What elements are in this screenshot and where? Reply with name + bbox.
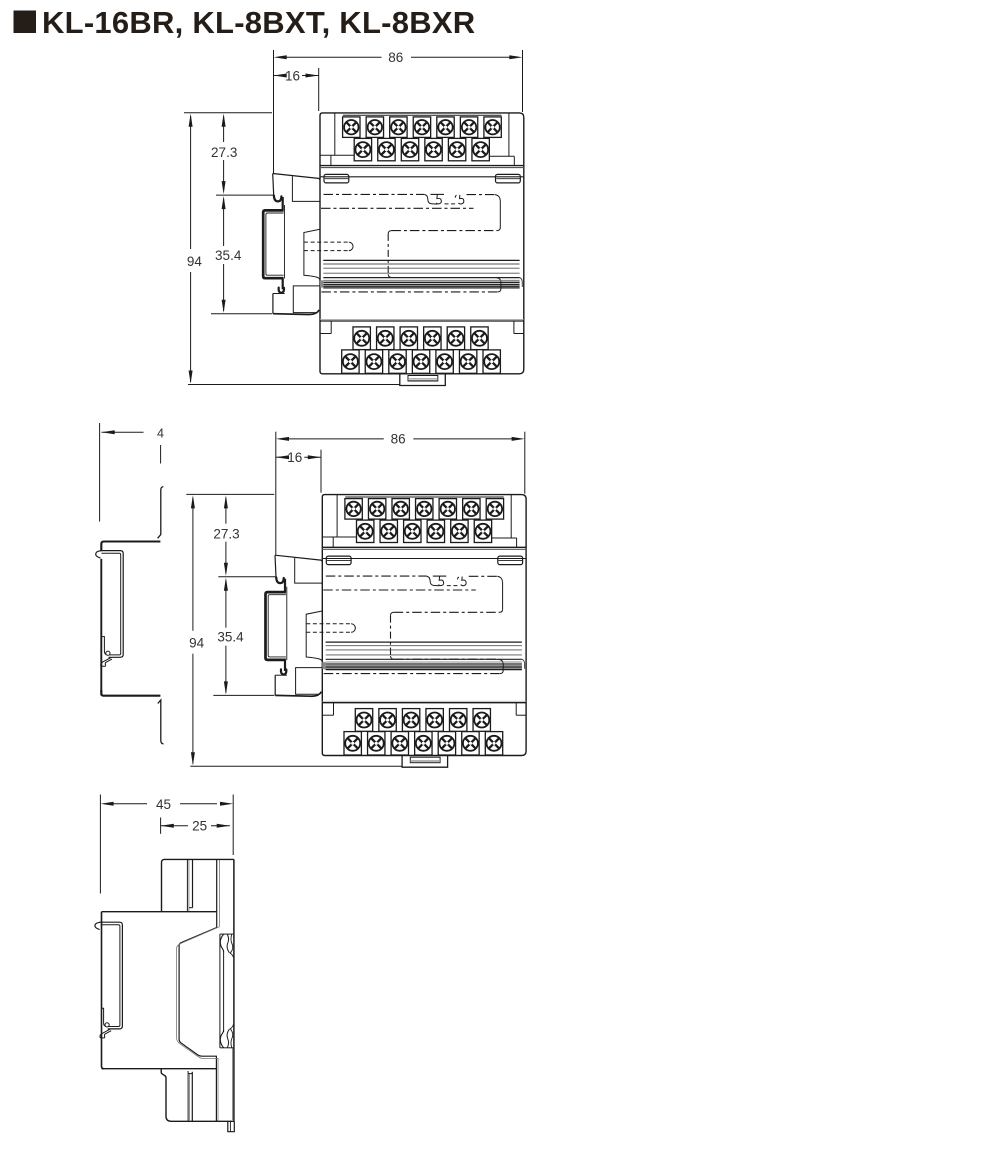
svg-text:4: 4 [157,426,164,440]
svg-text:94: 94 [187,254,203,269]
svg-text:45: 45 [156,797,171,812]
svg-text:27.3: 27.3 [211,145,237,160]
svg-text:KL-16BR, KL-8BXT, KL-8BXR: KL-16BR, KL-8BXT, KL-8BXR [42,5,475,40]
svg-text:16: 16 [285,68,300,83]
svg-text:35.4: 35.4 [215,248,242,263]
svg-text:86: 86 [388,50,403,65]
svg-text:25: 25 [192,819,207,834]
